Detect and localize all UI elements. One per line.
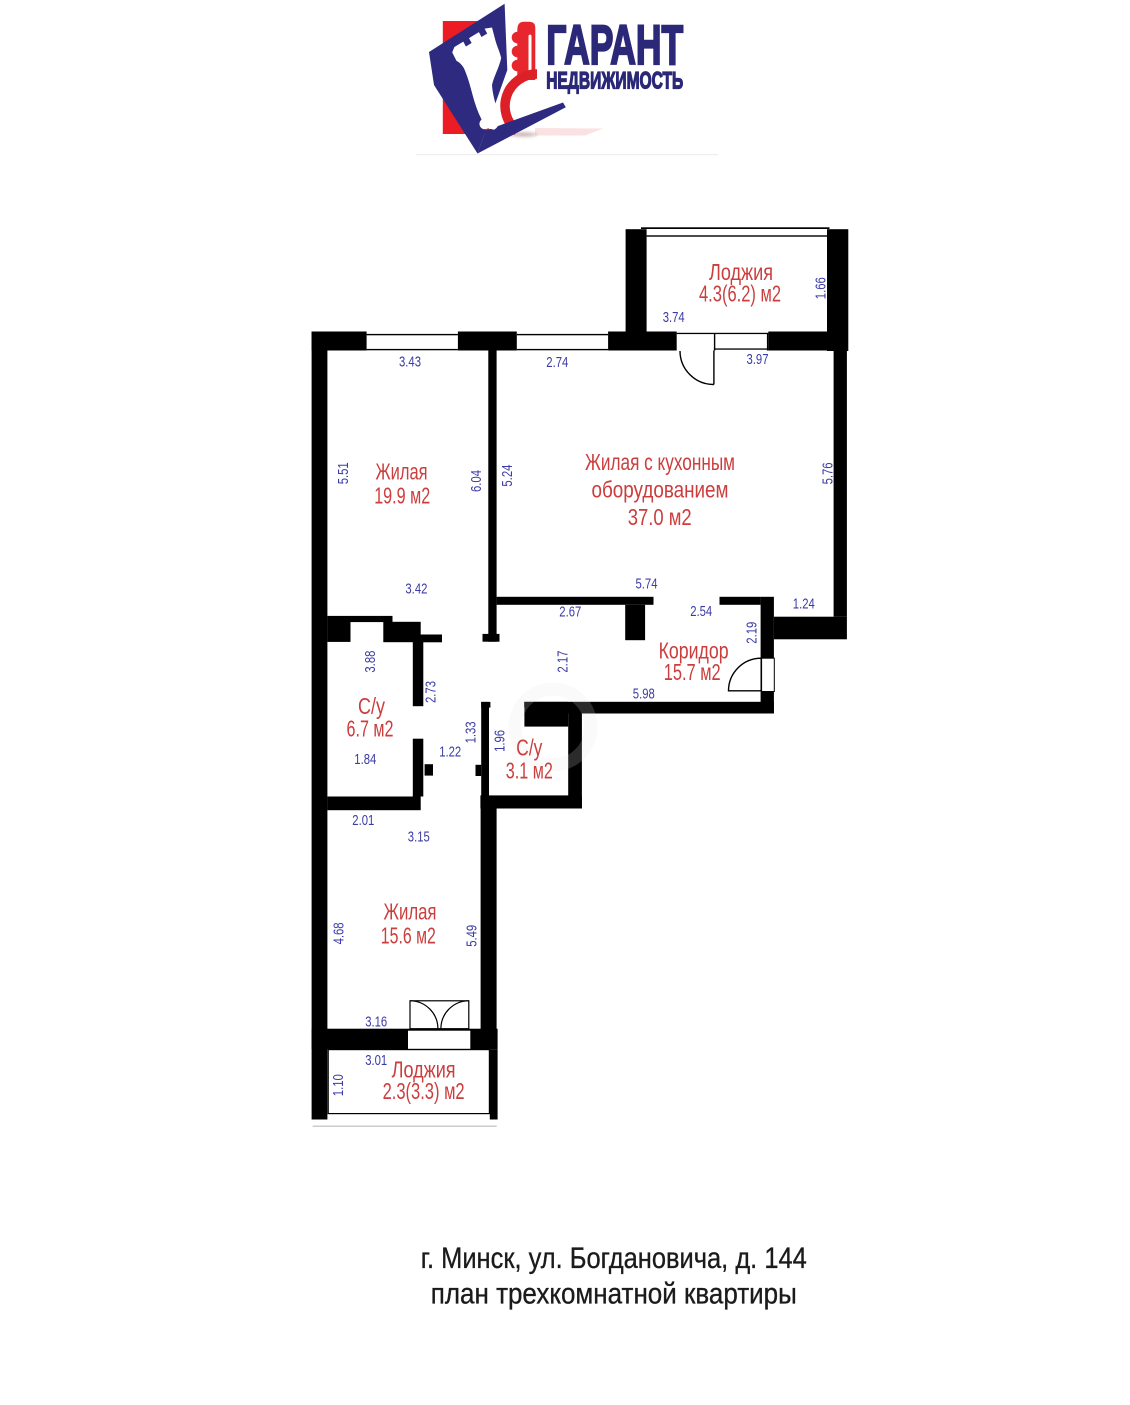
svg-text:оборудованием: оборудованием [592, 476, 729, 502]
svg-text:3.97: 3.97 [747, 352, 769, 368]
svg-text:2.73: 2.73 [424, 681, 440, 703]
svg-text:4.68: 4.68 [331, 922, 347, 944]
svg-text:1.66: 1.66 [813, 277, 829, 299]
svg-text:5.24: 5.24 [500, 465, 516, 487]
svg-text:5.98: 5.98 [633, 687, 655, 703]
svg-text:план трехкомнатной квартиры: план трехкомнатной квартиры [431, 1278, 797, 1311]
svg-text:Жилая: Жилая [376, 458, 428, 484]
svg-text:2.17: 2.17 [555, 651, 571, 673]
svg-text:1.33: 1.33 [463, 721, 479, 743]
svg-text:Жилая с кухонным: Жилая с кухонным [585, 449, 735, 475]
svg-text:5.49: 5.49 [465, 925, 481, 947]
svg-text:Жилая: Жилая [384, 899, 437, 925]
svg-text:2.74: 2.74 [546, 355, 568, 371]
svg-text:3.74: 3.74 [663, 310, 685, 326]
svg-text:3.88: 3.88 [363, 651, 379, 673]
svg-text:5.76: 5.76 [820, 462, 836, 484]
svg-text:2.19: 2.19 [745, 622, 761, 644]
svg-text:15.7 м2: 15.7 м2 [664, 659, 721, 685]
svg-text:1.84: 1.84 [354, 752, 376, 768]
svg-text:2.01: 2.01 [352, 813, 374, 829]
svg-text:2.54: 2.54 [690, 604, 712, 620]
svg-text:15.6 м2: 15.6 м2 [381, 923, 436, 949]
svg-text:37.0 м2: 37.0 м2 [628, 504, 692, 530]
svg-text:2.67: 2.67 [559, 605, 581, 621]
svg-text:3.15: 3.15 [408, 830, 430, 846]
svg-text:1.10: 1.10 [331, 1074, 347, 1096]
svg-text:2.3(3.3) м2: 2.3(3.3) м2 [383, 1078, 465, 1104]
svg-text:19.9 м2: 19.9 м2 [374, 482, 430, 508]
svg-text:1.22: 1.22 [439, 745, 461, 761]
svg-text:3.42: 3.42 [405, 581, 427, 597]
svg-text:5.74: 5.74 [636, 577, 658, 593]
svg-text:5.51: 5.51 [336, 462, 352, 484]
svg-text:4.3(6.2) м2: 4.3(6.2) м2 [699, 281, 781, 307]
svg-text:3.43: 3.43 [399, 354, 421, 370]
svg-text:НЕДВИЖИМОСТЬ: НЕДВИЖИМОСТЬ [546, 68, 683, 95]
svg-text:3.1 м2: 3.1 м2 [506, 757, 553, 783]
svg-text:6.7 м2: 6.7 м2 [347, 716, 394, 742]
svg-text:6.04: 6.04 [469, 470, 485, 492]
svg-text:1.96: 1.96 [492, 730, 508, 752]
svg-text:3.16: 3.16 [365, 1014, 387, 1030]
svg-text:г. Минск, ул. Богдановича, д.: г. Минск, ул. Богдановича, д. 144 [421, 1242, 807, 1275]
svg-text:1.24: 1.24 [793, 597, 815, 613]
svg-text:ГАРАНТ: ГАРАНТ [546, 13, 683, 76]
svg-text:3.01: 3.01 [365, 1053, 387, 1069]
